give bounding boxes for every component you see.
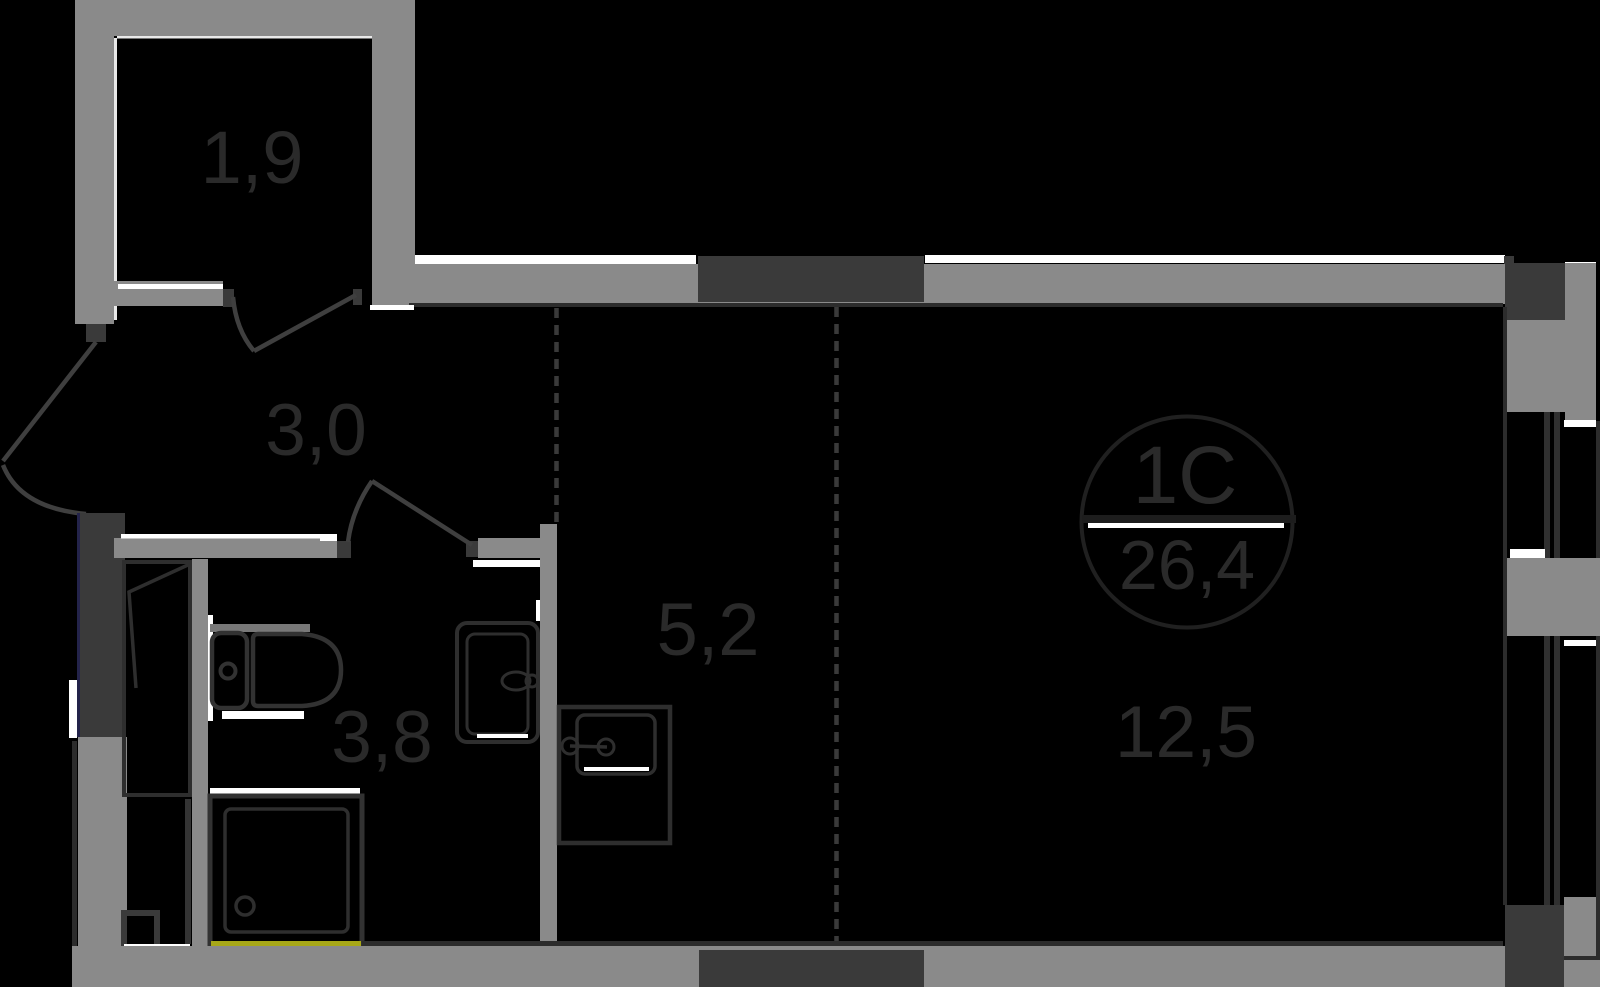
svg-text:3,8: 3,8 — [331, 697, 432, 778]
svg-text:12,5: 12,5 — [1115, 692, 1257, 773]
svg-text:1С: 1С — [1133, 430, 1238, 521]
svg-text:1,9: 1,9 — [201, 116, 304, 199]
svg-text:3,0: 3,0 — [265, 390, 366, 471]
svg-text:26,4: 26,4 — [1119, 526, 1255, 604]
svg-text:5,2: 5,2 — [657, 588, 760, 671]
